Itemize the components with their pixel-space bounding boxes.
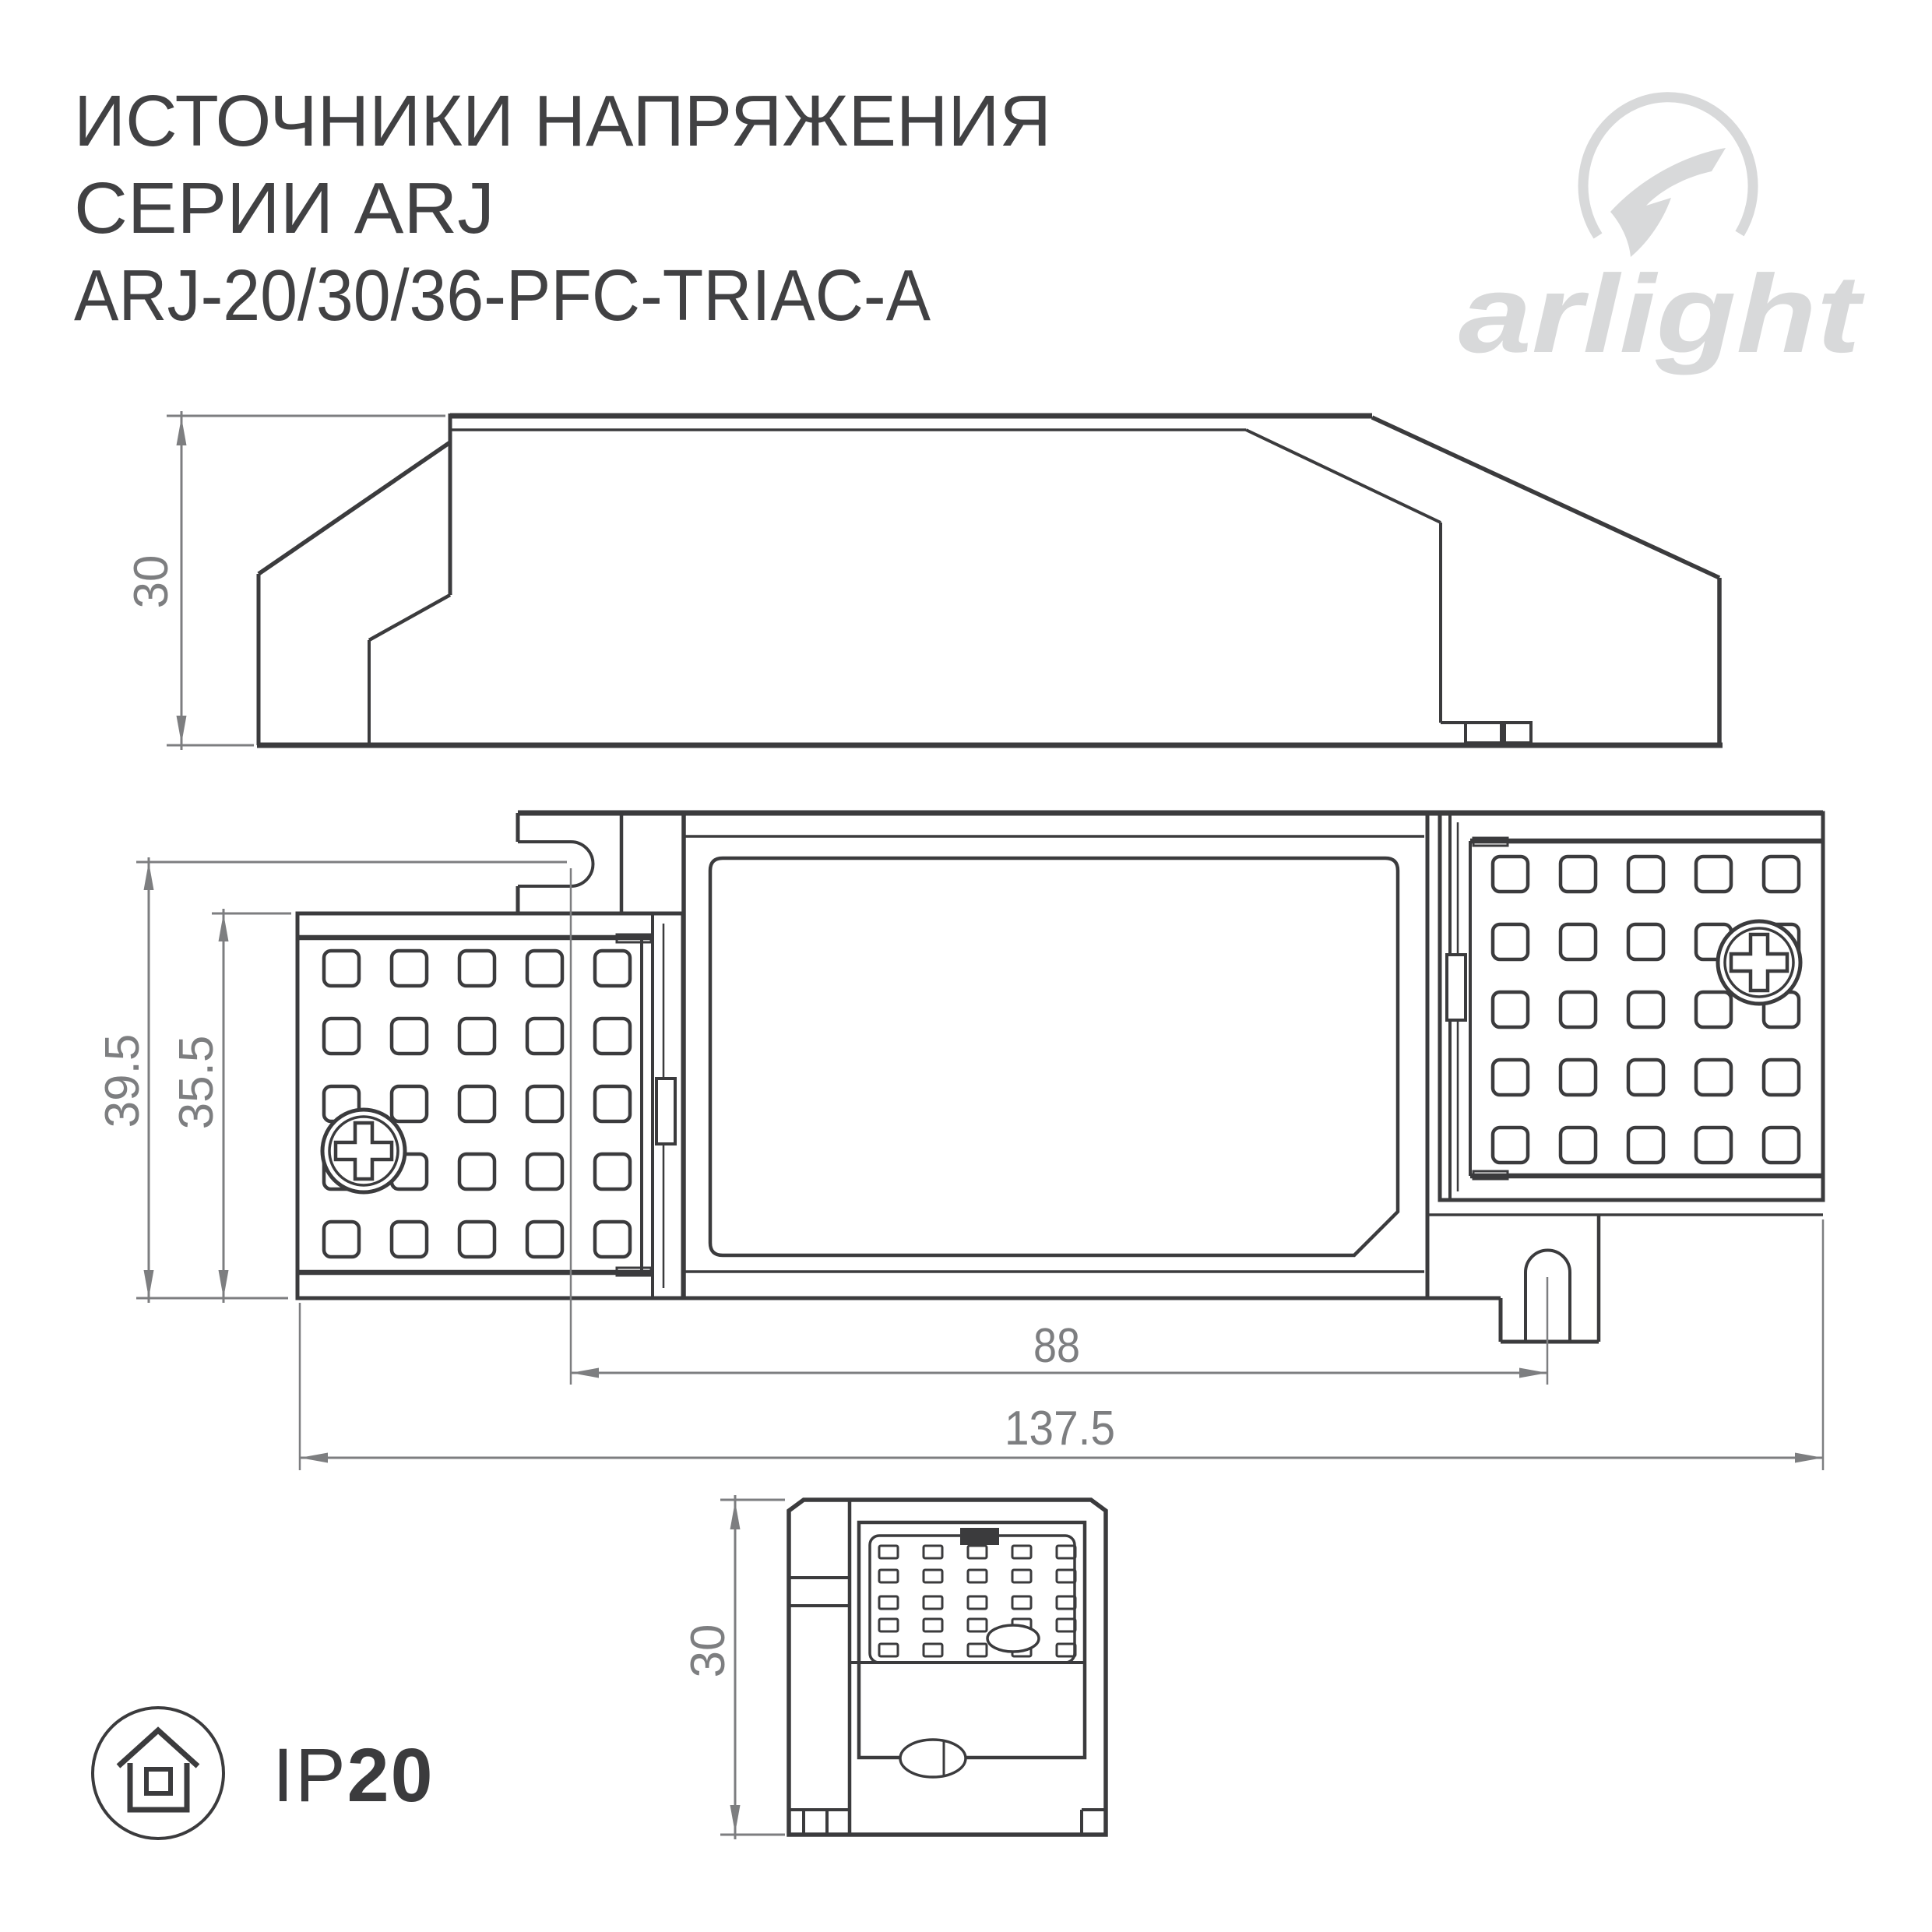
side-left-slope — [259, 442, 450, 574]
title-line-2: СЕРИИ ARJ — [74, 167, 494, 248]
vent-hole — [527, 1154, 562, 1189]
vent-hole — [1057, 1596, 1075, 1609]
vent-hole — [924, 1546, 942, 1558]
side-right-slope — [1372, 417, 1719, 578]
vent-hole — [595, 1154, 630, 1189]
vent-hole — [459, 951, 494, 986]
vent-hole — [392, 1086, 427, 1121]
arrowhead-down — [730, 1805, 741, 1833]
plan-view: 39.5 35.5 88 137.5 — [96, 813, 1823, 1470]
arrowhead-left — [300, 1453, 328, 1463]
main-cover-panel — [710, 858, 1398, 1255]
vent-hole — [324, 1019, 359, 1054]
vent-hole — [392, 1019, 427, 1054]
vent-hole — [968, 1619, 987, 1631]
vent-hole — [1493, 1060, 1528, 1095]
ip20-badge: IP20 — [93, 1708, 435, 1839]
vent-hole — [879, 1570, 898, 1582]
vent-hole — [1493, 857, 1528, 892]
vent-hole — [392, 1222, 427, 1257]
vent-hole — [1493, 1128, 1528, 1163]
arrowhead-up — [177, 417, 187, 445]
vent-hole — [1628, 924, 1663, 959]
vent-hole — [968, 1644, 987, 1656]
vent-hole — [1764, 1060, 1799, 1095]
end-vent-grid — [879, 1546, 1075, 1656]
left-terminal-block — [297, 913, 683, 1298]
vent-hole — [527, 1019, 562, 1054]
vent-hole — [459, 1222, 494, 1257]
side-height-label: 30 — [125, 555, 178, 609]
vent-hole — [1696, 1060, 1731, 1095]
vent-hole — [1012, 1570, 1031, 1582]
end-connector-mark — [960, 1528, 999, 1545]
vent-hole — [1628, 1060, 1663, 1095]
end-oval-upper — [987, 1625, 1039, 1652]
vent-hole — [968, 1570, 987, 1582]
vent-hole — [1561, 924, 1596, 959]
vent-hole — [879, 1644, 898, 1656]
vent-hole — [924, 1644, 942, 1656]
side-left-inner-slope — [369, 595, 450, 640]
screw-right — [1718, 921, 1800, 1004]
vent-hole — [924, 1596, 942, 1609]
vent-hole — [1696, 857, 1731, 892]
overall-length-label: 137.5 — [1005, 1402, 1115, 1455]
vent-hole — [1561, 857, 1596, 892]
screw-left — [322, 1110, 405, 1192]
vent-hole — [595, 1086, 630, 1121]
vent-hole — [924, 1570, 942, 1582]
vent-hole — [924, 1619, 942, 1631]
vent-hole — [459, 1086, 494, 1121]
vent-hole — [879, 1596, 898, 1609]
end-left-feet — [789, 1810, 850, 1835]
arrowhead-down — [219, 1270, 229, 1298]
end-oval-lower — [900, 1740, 966, 1777]
side-right-inner-slope — [1246, 430, 1441, 523]
right-vent-grid — [1493, 857, 1799, 1163]
logo-ring-icon — [1583, 97, 1753, 236]
mount-slot-left — [518, 842, 593, 886]
house-window-icon — [146, 1769, 171, 1793]
vent-hole — [1628, 857, 1663, 892]
end-right-foot — [1082, 1810, 1106, 1835]
ip-value: 20 — [347, 1733, 435, 1818]
logo-swoosh-icon — [1610, 148, 1726, 257]
vent-hole — [1057, 1546, 1075, 1558]
vent-hole — [879, 1619, 898, 1631]
vent-hole — [459, 1019, 494, 1054]
vent-hole — [1628, 1128, 1663, 1163]
vent-hole — [1561, 1060, 1596, 1095]
end-height-label: 30 — [681, 1624, 735, 1678]
ip-rating: IP20 — [273, 1733, 435, 1818]
right-terminal-block — [1440, 813, 1823, 1200]
vent-hole — [324, 951, 359, 986]
vent-hole — [1561, 1128, 1596, 1163]
vent-hole — [1628, 992, 1663, 1027]
title-block: ИСТОЧНИКИ НАПРЯЖЕНИЯ СЕРИИ ARJ ARJ-20/30… — [74, 80, 1051, 336]
drawing-sheet: ИСТОЧНИКИ НАПРЯЖЕНИЯ СЕРИИ ARJ ARJ-20/30… — [0, 0, 1932, 1932]
vent-hole — [1764, 857, 1799, 892]
plan-inner-height-label: 35.5 — [170, 1036, 223, 1130]
end-outline — [789, 1500, 1106, 1835]
side-foot-2 — [1504, 723, 1531, 743]
vent-hole — [527, 1086, 562, 1121]
side-height-dimension: 30 — [125, 411, 445, 750]
slot-distance-label: 88 — [1033, 1319, 1080, 1373]
vent-hole — [595, 1222, 630, 1257]
plan-outer-height-label: 39.5 — [96, 1034, 150, 1128]
ip-prefix: IP — [273, 1733, 347, 1818]
house-roof-icon — [118, 1730, 198, 1766]
vent-hole — [1057, 1570, 1075, 1582]
end-view: 30 — [681, 1495, 1106, 1839]
slot-distance-dimension: 88 — [571, 868, 1547, 1385]
arrowhead-left — [571, 1368, 599, 1378]
arrowhead-right — [1795, 1453, 1823, 1463]
arrowhead-right — [1519, 1368, 1547, 1378]
arlight-logo: arlight — [1459, 97, 1866, 376]
plan-inner-height-dimension: 35.5 — [170, 909, 291, 1303]
end-height-dimension: 30 — [681, 1495, 785, 1839]
title-line-3: ARJ-20/30/36-PFC-TRIAC-A — [74, 255, 931, 336]
arrowhead-up — [144, 862, 154, 890]
vent-hole — [1057, 1619, 1075, 1631]
vent-hole — [595, 1019, 630, 1054]
vent-hole — [1012, 1596, 1031, 1609]
logo-wordmark: arlight — [1459, 252, 1866, 376]
vent-hole — [968, 1546, 987, 1558]
vent-hole — [1057, 1644, 1075, 1656]
side-foot-1 — [1466, 723, 1501, 743]
vent-hole — [1493, 924, 1528, 959]
vent-hole — [392, 951, 427, 986]
vent-hole — [1012, 1546, 1031, 1558]
vent-hole — [1696, 1128, 1731, 1163]
vent-hole — [527, 1222, 562, 1257]
arrowhead-up — [219, 913, 229, 941]
vent-hole — [459, 1154, 494, 1189]
vent-hole — [324, 1222, 359, 1257]
vent-hole — [595, 951, 630, 986]
right-cover-latch — [1447, 955, 1466, 1020]
arrowhead-down — [177, 716, 187, 744]
technical-drawing: ИСТОЧНИКИ НАПРЯЖЕНИЯ СЕРИИ ARJ ARJ-20/30… — [0, 0, 1932, 1932]
arrowhead-up — [730, 1501, 741, 1529]
arrowhead-down — [144, 1270, 154, 1298]
vent-hole — [1696, 992, 1731, 1027]
left-block-outline — [297, 913, 683, 1298]
side-view: 30 — [125, 411, 1723, 750]
vent-hole — [1764, 1128, 1799, 1163]
vent-hole — [527, 951, 562, 986]
vent-hole — [1493, 992, 1528, 1027]
vent-hole — [968, 1596, 987, 1609]
vent-hole — [879, 1546, 898, 1558]
left-cover-latch — [656, 1079, 675, 1144]
title-line-1: ИСТОЧНИКИ НАПРЯЖЕНИЯ — [74, 80, 1051, 161]
left-vent-grid — [324, 951, 630, 1257]
vent-hole — [1561, 992, 1596, 1027]
